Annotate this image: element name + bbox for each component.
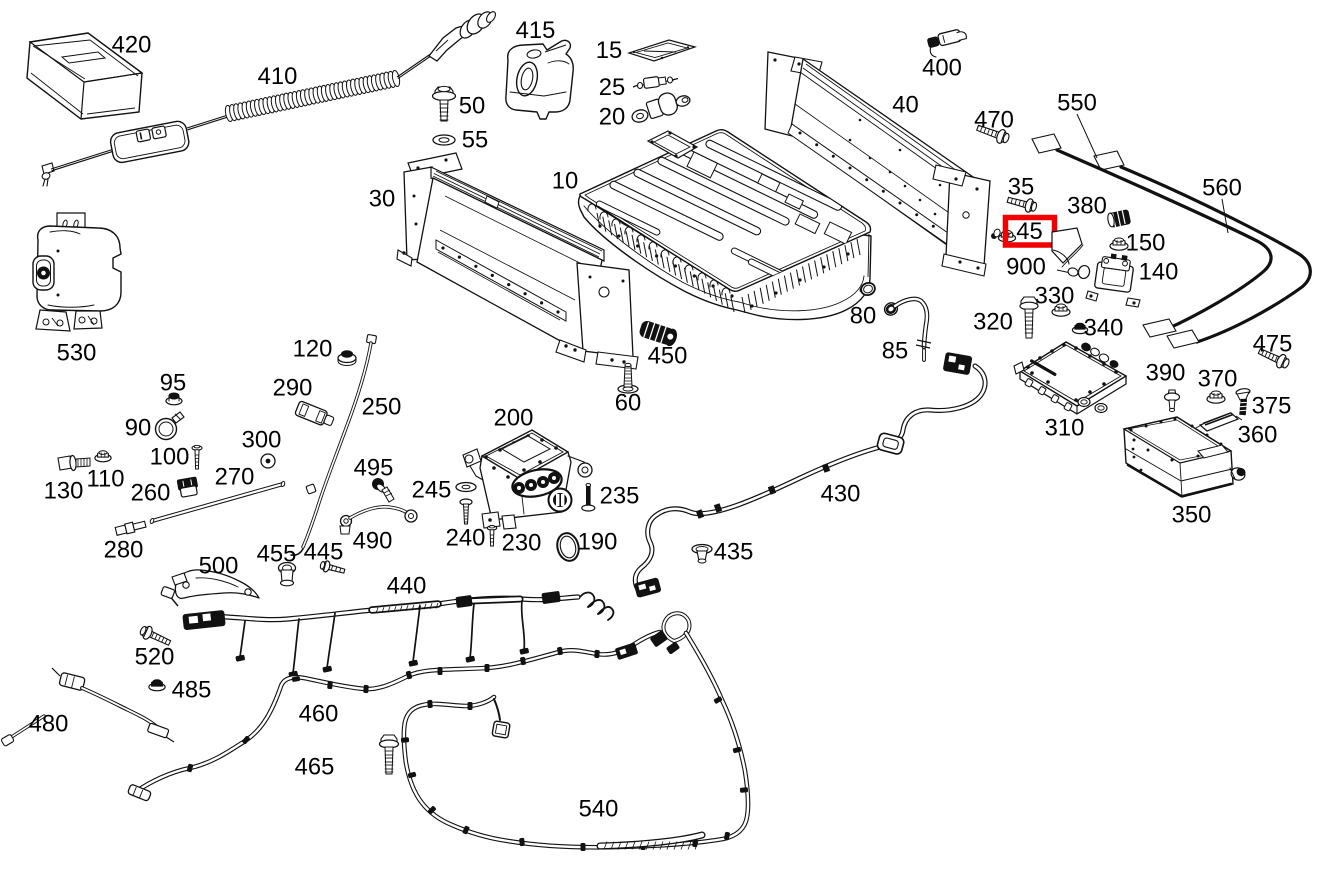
svg-text:45: 45 <box>1016 218 1042 245</box>
svg-text:10: 10 <box>552 168 578 195</box>
svg-text:410: 410 <box>258 63 298 90</box>
svg-text:465: 465 <box>295 754 335 781</box>
svg-text:415: 415 <box>516 17 556 44</box>
svg-text:550: 550 <box>1057 90 1097 117</box>
svg-text:380: 380 <box>1067 193 1107 220</box>
svg-text:50: 50 <box>459 93 485 120</box>
svg-text:540: 540 <box>579 796 619 823</box>
svg-text:200: 200 <box>494 405 534 432</box>
svg-text:440: 440 <box>387 573 427 600</box>
svg-text:430: 430 <box>821 481 861 508</box>
svg-text:390: 390 <box>1146 360 1186 387</box>
svg-text:530: 530 <box>57 340 97 367</box>
svg-text:30: 30 <box>369 186 395 213</box>
svg-text:310: 310 <box>1045 415 1085 442</box>
svg-text:85: 85 <box>882 338 908 365</box>
svg-text:370: 370 <box>1198 366 1238 393</box>
svg-text:400: 400 <box>922 55 962 82</box>
svg-text:25: 25 <box>599 74 625 101</box>
svg-text:190: 190 <box>578 529 618 556</box>
svg-text:140: 140 <box>1139 259 1179 286</box>
svg-text:460: 460 <box>299 701 339 728</box>
svg-text:520: 520 <box>135 644 175 671</box>
svg-text:330: 330 <box>1035 283 1075 310</box>
svg-text:120: 120 <box>293 336 333 363</box>
svg-text:470: 470 <box>974 107 1014 134</box>
svg-text:450: 450 <box>648 343 688 370</box>
svg-text:435: 435 <box>714 539 754 566</box>
svg-text:230: 230 <box>502 530 542 557</box>
svg-text:480: 480 <box>29 711 69 738</box>
svg-text:350: 350 <box>1172 502 1212 529</box>
svg-text:150: 150 <box>1126 230 1166 257</box>
svg-text:90: 90 <box>125 415 151 442</box>
svg-text:240: 240 <box>446 525 486 552</box>
svg-text:110: 110 <box>87 466 125 493</box>
svg-text:375: 375 <box>1252 393 1292 420</box>
svg-text:40: 40 <box>892 92 918 119</box>
svg-text:60: 60 <box>615 390 641 417</box>
svg-text:100: 100 <box>150 444 190 471</box>
svg-text:455: 455 <box>257 541 297 568</box>
svg-text:20: 20 <box>599 104 625 131</box>
svg-text:245: 245 <box>412 477 452 504</box>
svg-text:495: 495 <box>354 455 394 482</box>
svg-text:485: 485 <box>172 677 212 704</box>
svg-text:80: 80 <box>850 303 876 330</box>
svg-text:260: 260 <box>131 480 171 507</box>
svg-text:560: 560 <box>1202 175 1242 202</box>
svg-text:15: 15 <box>596 37 622 64</box>
svg-text:95: 95 <box>160 370 186 397</box>
svg-text:130: 130 <box>44 478 84 505</box>
svg-text:445: 445 <box>304 539 344 566</box>
svg-text:55: 55 <box>462 127 488 154</box>
svg-text:280: 280 <box>104 537 144 564</box>
svg-text:500: 500 <box>199 553 239 580</box>
svg-text:475: 475 <box>1253 331 1293 358</box>
svg-text:420: 420 <box>112 32 152 59</box>
svg-text:250: 250 <box>362 394 402 421</box>
svg-text:35: 35 <box>1008 174 1034 201</box>
svg-text:340: 340 <box>1084 315 1124 342</box>
svg-text:235: 235 <box>600 483 640 510</box>
svg-text:270: 270 <box>215 464 255 491</box>
svg-text:360: 360 <box>1238 422 1278 449</box>
svg-text:300: 300 <box>242 427 282 454</box>
svg-text:900: 900 <box>1006 254 1046 281</box>
svg-text:290: 290 <box>273 375 313 402</box>
svg-text:320: 320 <box>973 309 1013 336</box>
svg-text:490: 490 <box>353 528 393 555</box>
